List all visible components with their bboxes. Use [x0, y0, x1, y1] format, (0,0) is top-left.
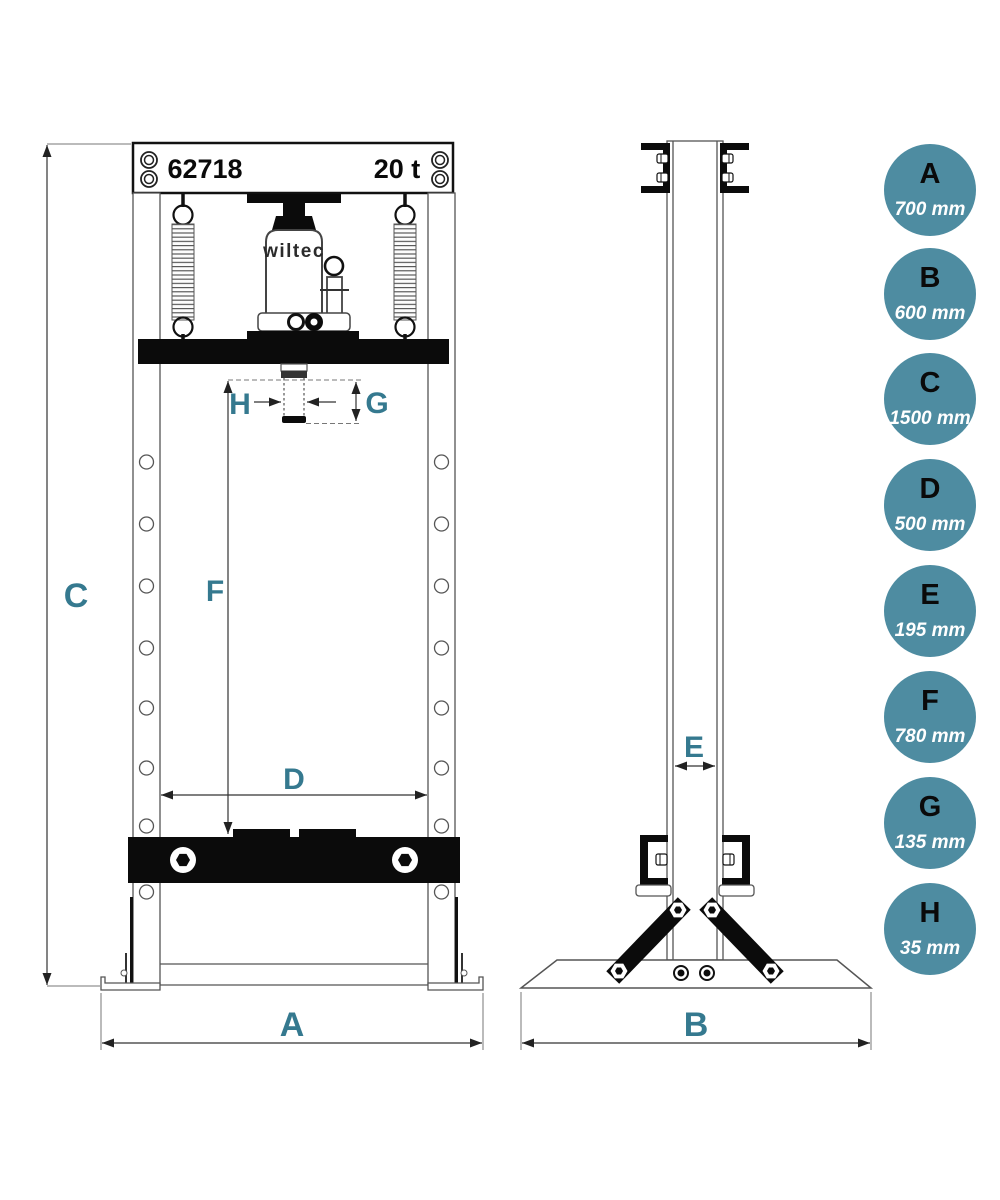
dim-label-d: D [283, 763, 305, 796]
press-plate [233, 829, 290, 837]
legend-item-e: E 195 mm [884, 565, 976, 657]
legend-item-b: B 600 mm [884, 248, 976, 340]
legend-item-f: F 780 mm [884, 671, 976, 763]
dim-G: G [356, 382, 389, 421]
dim-label-h: H [229, 388, 251, 421]
legend-letter-b: B [920, 262, 941, 294]
press-plate [299, 829, 356, 837]
legend-value-h: 35 mm [900, 938, 960, 959]
top-clamp-left [641, 143, 670, 193]
side-column [667, 141, 723, 960]
legend-item-a: A 700 mm [884, 144, 976, 236]
side-view: E [521, 141, 871, 1050]
technical-drawing-page: C 62718 20 t [0, 0, 1000, 1200]
legend-value-c: 1500 mm [889, 408, 970, 429]
brand-label: wiltec [262, 241, 325, 262]
top-clamp-right [720, 143, 749, 193]
return-spring-right [394, 193, 416, 350]
column-holes [140, 455, 449, 899]
return-spring-left [172, 193, 194, 350]
dim-label-c: C [64, 577, 89, 615]
legend-letter-e: E [920, 579, 939, 611]
dim-A: A [101, 993, 483, 1050]
dim-C: C [47, 144, 131, 986]
dim-label-g: G [365, 387, 388, 420]
legend-item-h: H 35 mm [884, 883, 976, 975]
press-ram [281, 364, 307, 423]
legend-letter-c: C [920, 367, 941, 399]
legend-value-a: 700 mm [895, 199, 966, 220]
work-table [128, 829, 460, 883]
front-view: C 62718 20 t [47, 143, 483, 1050]
model-number: 62718 [167, 154, 242, 184]
legend-value-f: 780 mm [895, 726, 966, 747]
legend-letter-f: F [921, 685, 939, 717]
dim-label-b: B [684, 1006, 709, 1044]
legend-value-b: 600 mm [895, 303, 966, 324]
legend-letter-h: H [920, 897, 941, 929]
side-bracket-left [636, 835, 671, 896]
legend-letter-g: G [919, 791, 942, 823]
legend-item-c: C 1500 mm [884, 353, 976, 445]
legend-letter-a: A [920, 158, 941, 190]
dim-D: D [161, 763, 427, 796]
side-base [521, 960, 871, 988]
legend-value-e: 195 mm [895, 620, 966, 641]
press-header: 62718 20 t [133, 143, 453, 193]
shop-press-drawing: C 62718 20 t [0, 0, 1000, 1200]
capacity-label: 20 t [374, 154, 421, 184]
dim-B: B [521, 992, 871, 1050]
legend-value-g: 135 mm [895, 832, 966, 853]
legend-item-g: G 135 mm [884, 777, 976, 869]
moving-beam [138, 339, 449, 364]
handle-socket-icon [325, 257, 343, 275]
legend-item-d: D 500 mm [884, 459, 976, 551]
dim-F: F [206, 381, 228, 834]
side-bracket-right [719, 835, 754, 896]
legend-value-d: 500 mm [895, 514, 966, 535]
legend-letter-d: D [920, 473, 941, 505]
legend: A 700 mm B 600 mm C 1500 mm D 500 mm E 1… [884, 144, 976, 975]
bottle-jack: wiltec [247, 194, 359, 339]
dim-label-f: F [206, 575, 224, 608]
dim-label-e: E [684, 731, 704, 764]
dim-label-a: A [280, 1006, 305, 1044]
